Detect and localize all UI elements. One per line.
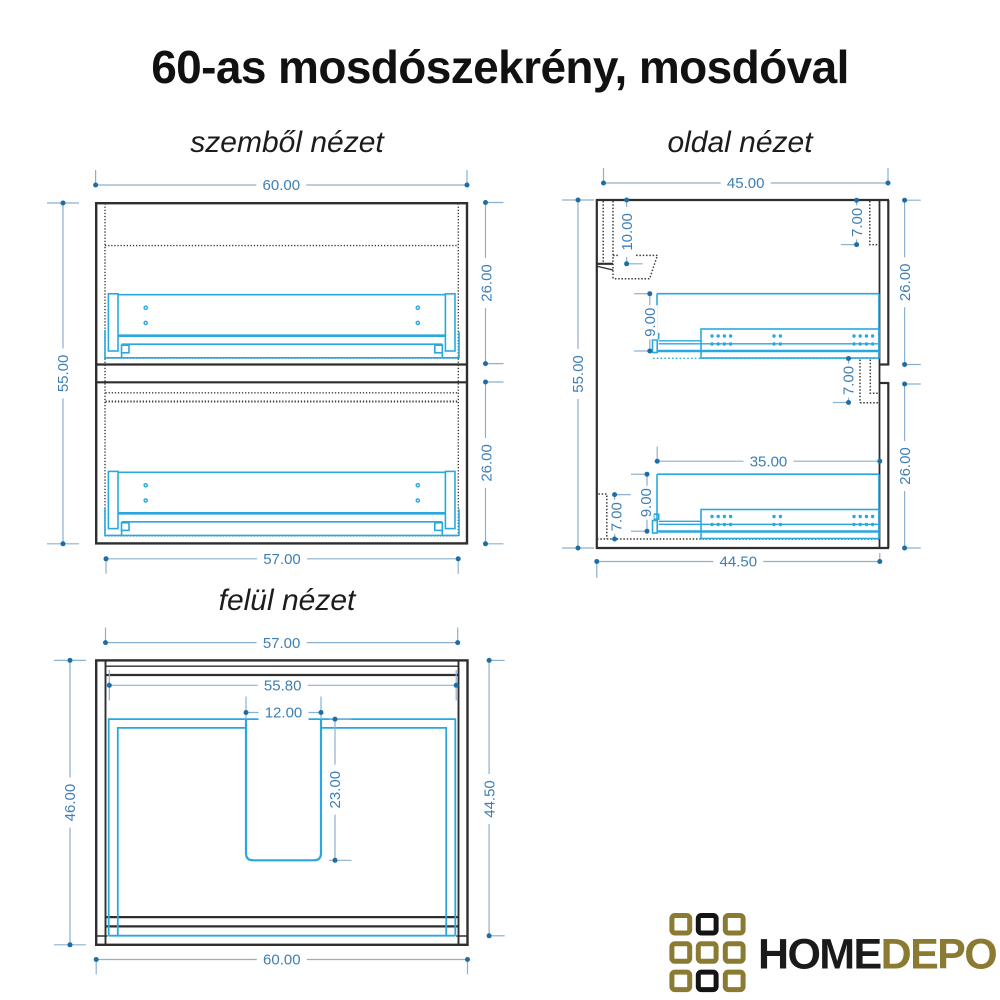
svg-text:23.00: 23.00 (327, 771, 344, 809)
svg-text:60-as mosdószekrény, mosdóval: 60-as mosdószekrény, mosdóval (151, 41, 849, 93)
svg-text:35.00: 35.00 (750, 453, 788, 470)
svg-text:44.50: 44.50 (720, 554, 758, 571)
svg-text:HOMEDEPO: HOMEDEPO (758, 931, 996, 979)
svg-text:9.00: 9.00 (642, 308, 659, 337)
svg-text:7.00: 7.00 (841, 366, 858, 395)
svg-text:44.50: 44.50 (481, 780, 498, 818)
svg-text:60.00: 60.00 (263, 952, 301, 969)
svg-text:55.00: 55.00 (570, 355, 587, 393)
svg-text:26.00: 26.00 (479, 264, 496, 302)
svg-text:10.00: 10.00 (619, 213, 636, 251)
svg-text:12.00: 12.00 (265, 705, 303, 722)
svg-text:7.00: 7.00 (849, 208, 866, 237)
svg-text:57.00: 57.00 (263, 635, 301, 652)
svg-text:26.00: 26.00 (897, 447, 914, 485)
svg-text:45.00: 45.00 (727, 175, 765, 192)
svg-text:60.00: 60.00 (263, 177, 301, 194)
svg-text:55.00: 55.00 (55, 355, 72, 393)
svg-text:7.00: 7.00 (609, 502, 626, 531)
svg-text:26.00: 26.00 (479, 444, 496, 482)
svg-text:9.00: 9.00 (638, 488, 655, 517)
svg-text:46.00: 46.00 (62, 784, 79, 822)
svg-text:26.00: 26.00 (897, 264, 914, 302)
svg-text:szemből nézet: szemből nézet (190, 126, 385, 159)
svg-text:57.00: 57.00 (263, 551, 301, 568)
svg-text:felül nézet: felül nézet (219, 584, 357, 617)
svg-text:oldal nézet: oldal nézet (667, 126, 814, 159)
svg-text:55.80: 55.80 (264, 678, 302, 695)
